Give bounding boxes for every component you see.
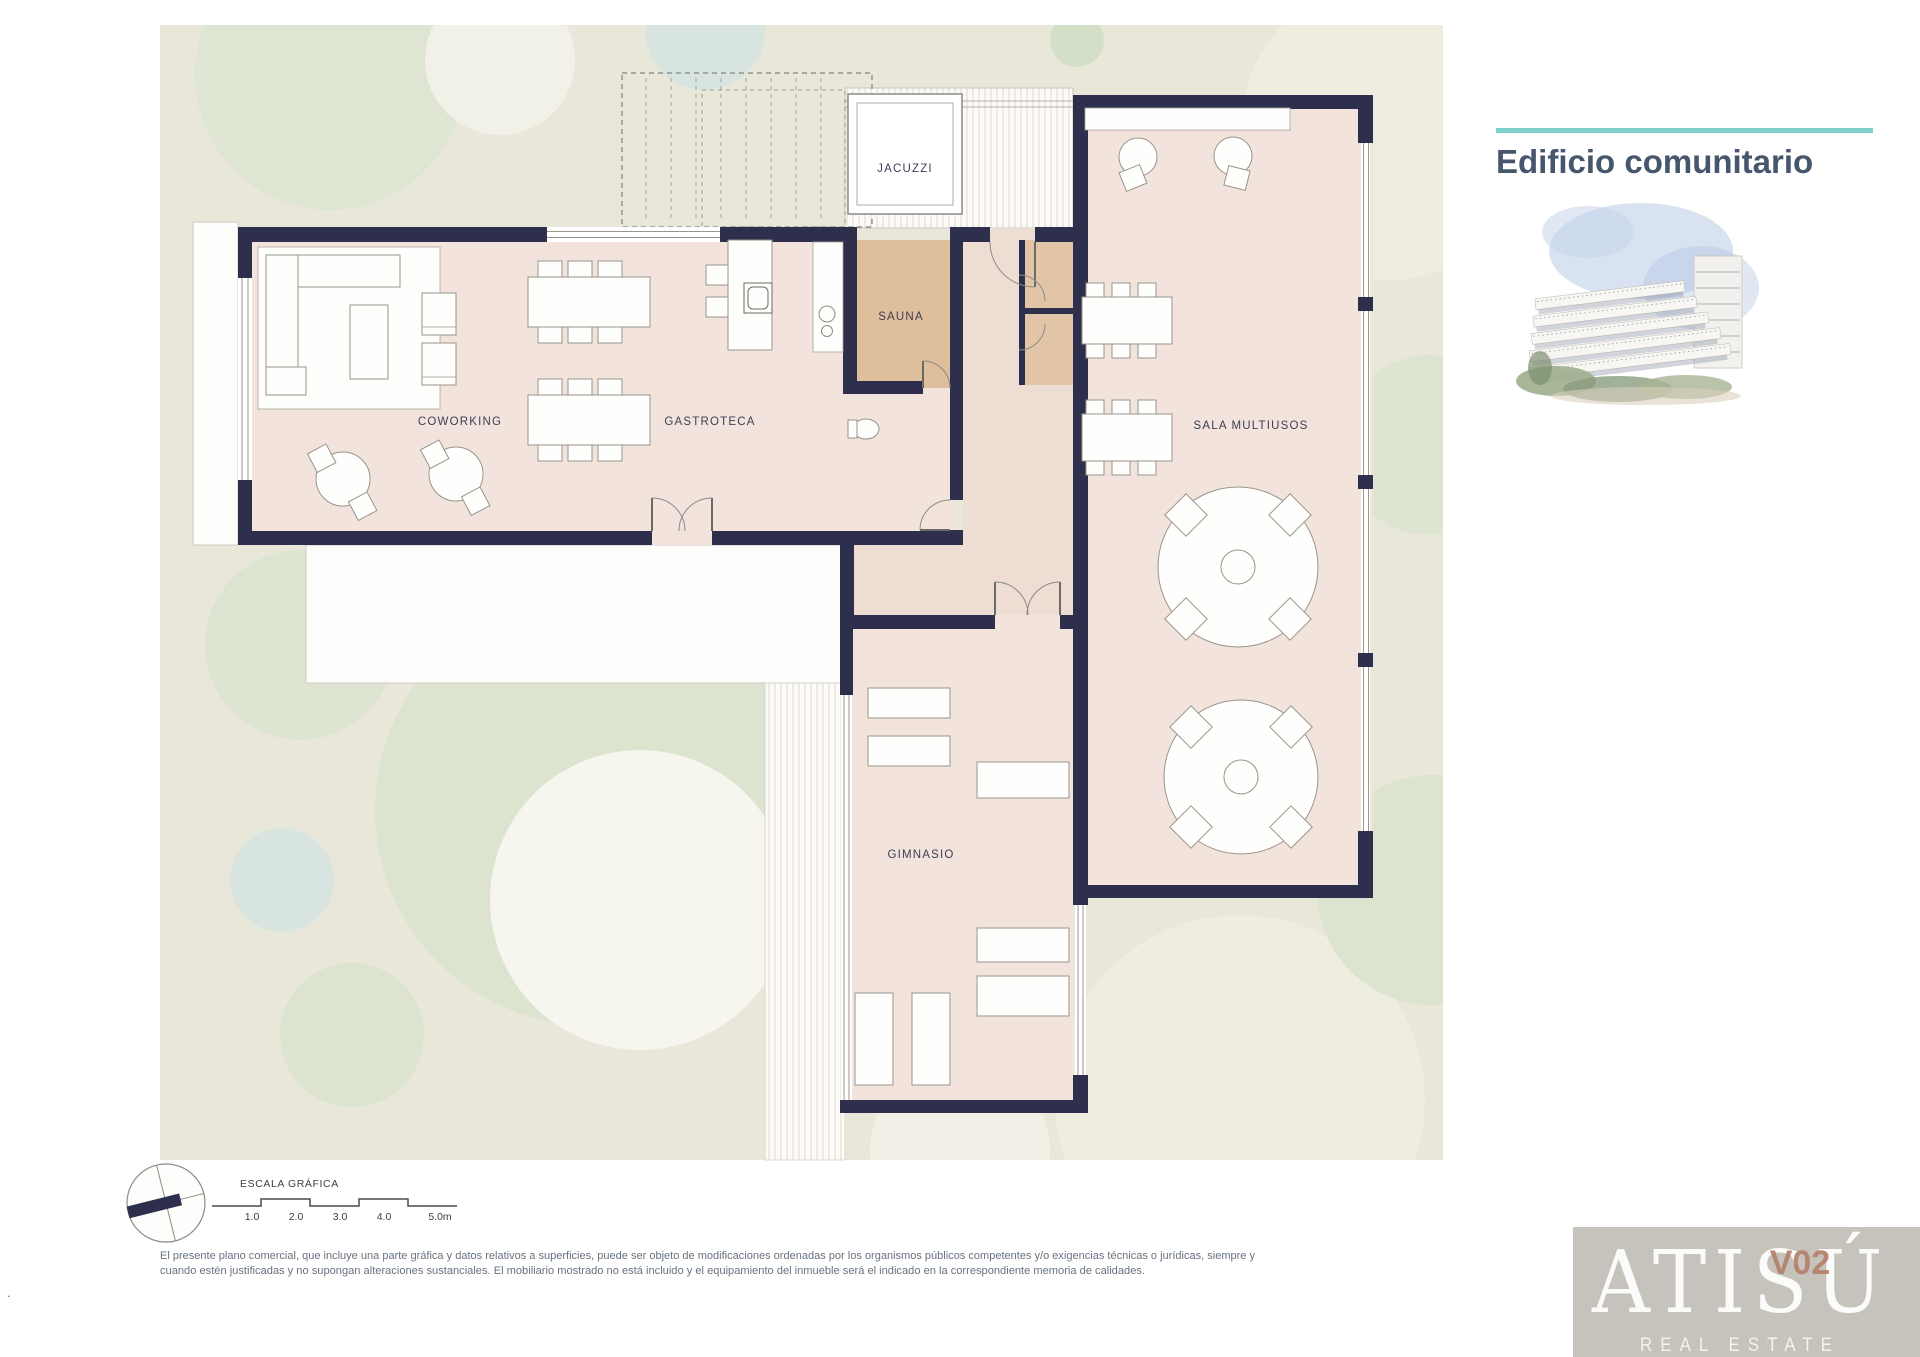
room-label-coworking: COWORKING [418,416,502,428]
room-label-gastroteca: GASTROTECA [664,416,755,428]
logo-brand-text: ATISÚ [1591,1232,1890,1333]
scale-tick: 3.0 [333,1211,348,1223]
room-label-jacuzzi: JACUZZI [877,163,933,175]
disclaimer-line-1: El presente plano comercial, que incluye… [160,1250,1255,1262]
room-label-sauna: SAUNA [878,311,924,323]
scale-tick: 2.0 [289,1211,304,1223]
room-label-gimnasio: GIMNASIO [887,849,954,861]
north-compass-icon [119,1156,214,1251]
logo-block: ATISÚ V02 REAL ESTATE [1573,1227,1920,1357]
room-label-sala-multiusos: SALA MULTIUSOS [1193,420,1308,432]
plan-sheet: JACUZZI SAUNA COWORKING GASTROTECA SALA … [0,0,1920,1357]
disclaimer-line-2: cuando estén justificadas y no supongan … [160,1265,1145,1277]
scale-tick: 1.0 [245,1211,260,1223]
scale-tick: 5.0m [428,1211,452,1223]
stray-mark: . [7,1285,11,1300]
disclaimer: El presente plano comercial, que incluye… [160,1250,1255,1277]
room-floor-wc [845,388,955,545]
furniture-wc [848,419,879,439]
logo-version-badge: V02 [1770,1244,1831,1282]
scale-tick: 4.0 [377,1211,392,1223]
title-block: Edificio comunitario [1496,128,1873,180]
walkway-deck [765,683,845,1160]
page-title: Edificio comunitario [1496,143,1813,180]
logo-tagline-text: REAL ESTATE [1640,1335,1840,1356]
accent-line [1496,128,1873,133]
scale-bar: ESCALA GRÁFICA 1.0 2.0 3.0 4.0 5.0m [212,1177,457,1223]
scale-bar-label: ESCALA GRÁFICA [240,1177,339,1190]
building-illustration [1516,203,1759,405]
jacuzzi-tub [848,94,962,214]
room-floor-vestibule [845,545,1073,615]
